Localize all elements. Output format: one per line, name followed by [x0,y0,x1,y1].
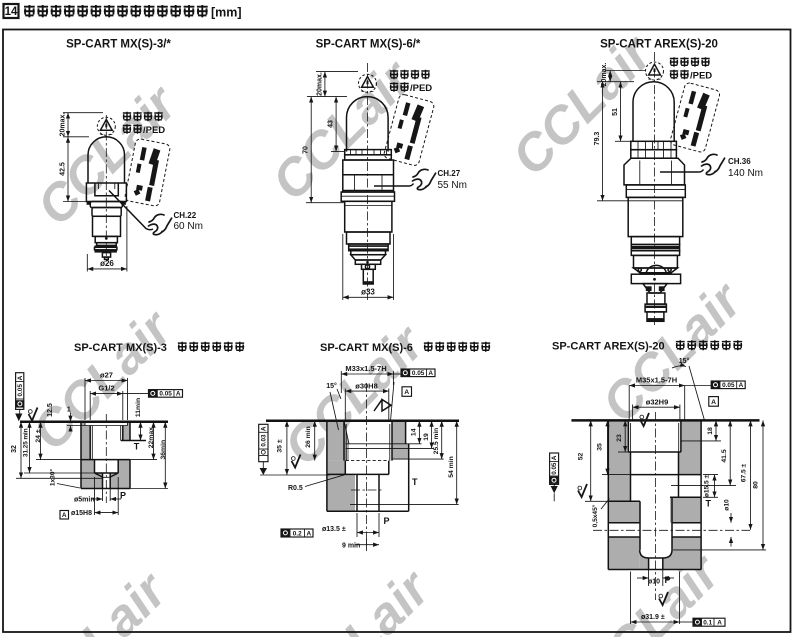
svg-text:P: P [665,575,671,585]
svg-text:26 min: 26 min [305,426,312,448]
svg-text:ø33: ø33 [361,288,375,297]
svg-text:20max.: 20max. [316,72,323,96]
svg-text:G1/2: G1/2 [98,384,114,393]
svg-text:9 min: 9 min [342,543,360,550]
svg-text:T: T [412,477,418,487]
svg-text:M35x1.5-7H: M35x1.5-7H [636,376,677,385]
svg-text:ø10: ø10 [724,499,731,511]
svg-text:0.05: 0.05 [722,382,735,389]
svg-text:0.03: 0.03 [260,434,267,447]
svg-text:67.5 ±: 67.5 ± [741,463,748,482]
svg-text:P: P [384,516,390,526]
svg-text:12.5: 12.5 [47,403,54,417]
svg-text:31.25 min: 31.25 min [23,428,30,457]
svg-text:SP-CART MX(S)-3: SP-CART MX(S)-3 [74,342,167,354]
svg-text:20max.: 20max. [601,63,608,87]
svg-text:23: 23 [616,434,623,442]
svg-text:SP-CART MX(S)-6/*: SP-CART MX(S)-6/* [316,39,421,51]
svg-text:A: A [428,370,433,377]
svg-text:54 min: 54 min [448,456,455,478]
svg-text:ø15.5 ±: ø15.5 ± [704,474,711,497]
svg-text:/PED: /PED [410,83,432,94]
svg-text:51: 51 [612,108,619,116]
svg-text:M33x1.5-7H: M33x1.5-7H [345,364,386,373]
svg-text:ø31.9 ±: ø31.9 ± [641,614,665,621]
svg-text:CH.27: CH.27 [438,169,461,178]
svg-text:/PED: /PED [143,125,165,136]
svg-text:36min: 36min [160,440,167,460]
svg-text:24 ±: 24 ± [35,429,42,442]
svg-text:11min: 11min [135,398,142,417]
svg-text:52: 52 [578,453,585,461]
svg-text:1: 1 [67,407,71,414]
svg-text:ø10: ø10 [648,579,660,586]
svg-text:25.5 min: 25.5 min [433,428,440,454]
svg-text:15°: 15° [679,357,690,365]
svg-text:60 Nm: 60 Nm [174,221,203,232]
svg-text:CH.36: CH.36 [728,157,751,166]
svg-text:[mm]: [mm] [211,6,242,20]
svg-text:55 Nm: 55 Nm [438,180,467,191]
svg-text:0,5x45°: 0,5x45° [591,504,599,527]
svg-text:32: 32 [11,445,18,453]
svg-text:A: A [306,530,311,537]
svg-text:0.2: 0.2 [293,530,302,537]
svg-text:0.05: 0.05 [412,370,425,377]
svg-text:35 ±: 35 ± [277,439,284,452]
svg-text:A: A [717,620,722,627]
svg-text:22max: 22max [148,427,155,448]
svg-text:18: 18 [707,427,714,435]
svg-text:A: A [17,375,24,380]
svg-text:A: A [176,391,181,398]
svg-text:ø13.5 ±: ø13.5 ± [322,526,346,533]
svg-text:0.05: 0.05 [159,391,172,398]
svg-text:SP-CART AREX(S)-20: SP-CART AREX(S)-20 [600,39,718,51]
svg-text:SP-CART AREX(S)-20: SP-CART AREX(S)-20 [552,341,665,353]
svg-text:ø15H8: ø15H8 [71,510,92,517]
svg-text:ø30H8: ø30H8 [355,382,378,391]
svg-text:A: A [62,512,67,519]
svg-text:P: P [120,491,126,501]
svg-text:0.05: 0.05 [551,462,558,475]
svg-text:140 Nm: 140 Nm [728,168,763,179]
svg-text:15°: 15° [326,382,337,390]
svg-text:41.5: 41.5 [721,449,728,462]
svg-text:19: 19 [423,433,430,441]
svg-text:35: 35 [597,443,604,451]
svg-text:20max.: 20max. [60,113,67,137]
svg-text:ø5min: ø5min [74,497,95,504]
svg-text:42.5: 42.5 [60,162,67,176]
svg-text:0.05: 0.05 [17,384,24,397]
svg-text:0.1: 0.1 [703,620,712,627]
svg-text:43: 43 [328,120,335,128]
svg-text:A: A [739,382,744,389]
svg-text:CH.22: CH.22 [174,211,197,220]
svg-text:ø26: ø26 [100,259,114,268]
svg-text:T: T [706,499,712,509]
svg-text:A: A [551,455,558,460]
svg-text:A: A [404,389,409,396]
svg-text:79.3: 79.3 [594,132,601,146]
svg-text:14: 14 [5,6,18,18]
svg-text:80: 80 [753,481,760,489]
svg-text:ø27: ø27 [100,371,113,380]
svg-text:ø32H9: ø32H9 [646,397,669,406]
svg-text:1x30°: 1x30° [49,468,57,486]
svg-text:SP-CART MX(S)-3/*: SP-CART MX(S)-3/* [66,39,171,51]
svg-text:70: 70 [303,146,310,154]
svg-text:/PED: /PED [690,71,712,82]
svg-text:14: 14 [411,428,418,436]
svg-text:SP-CART MX(S)-6: SP-CART MX(S)-6 [320,342,413,354]
svg-text:A: A [711,399,716,406]
svg-text:T: T [134,442,140,452]
svg-text:A: A [260,426,267,431]
svg-text:R0.5: R0.5 [288,485,303,492]
